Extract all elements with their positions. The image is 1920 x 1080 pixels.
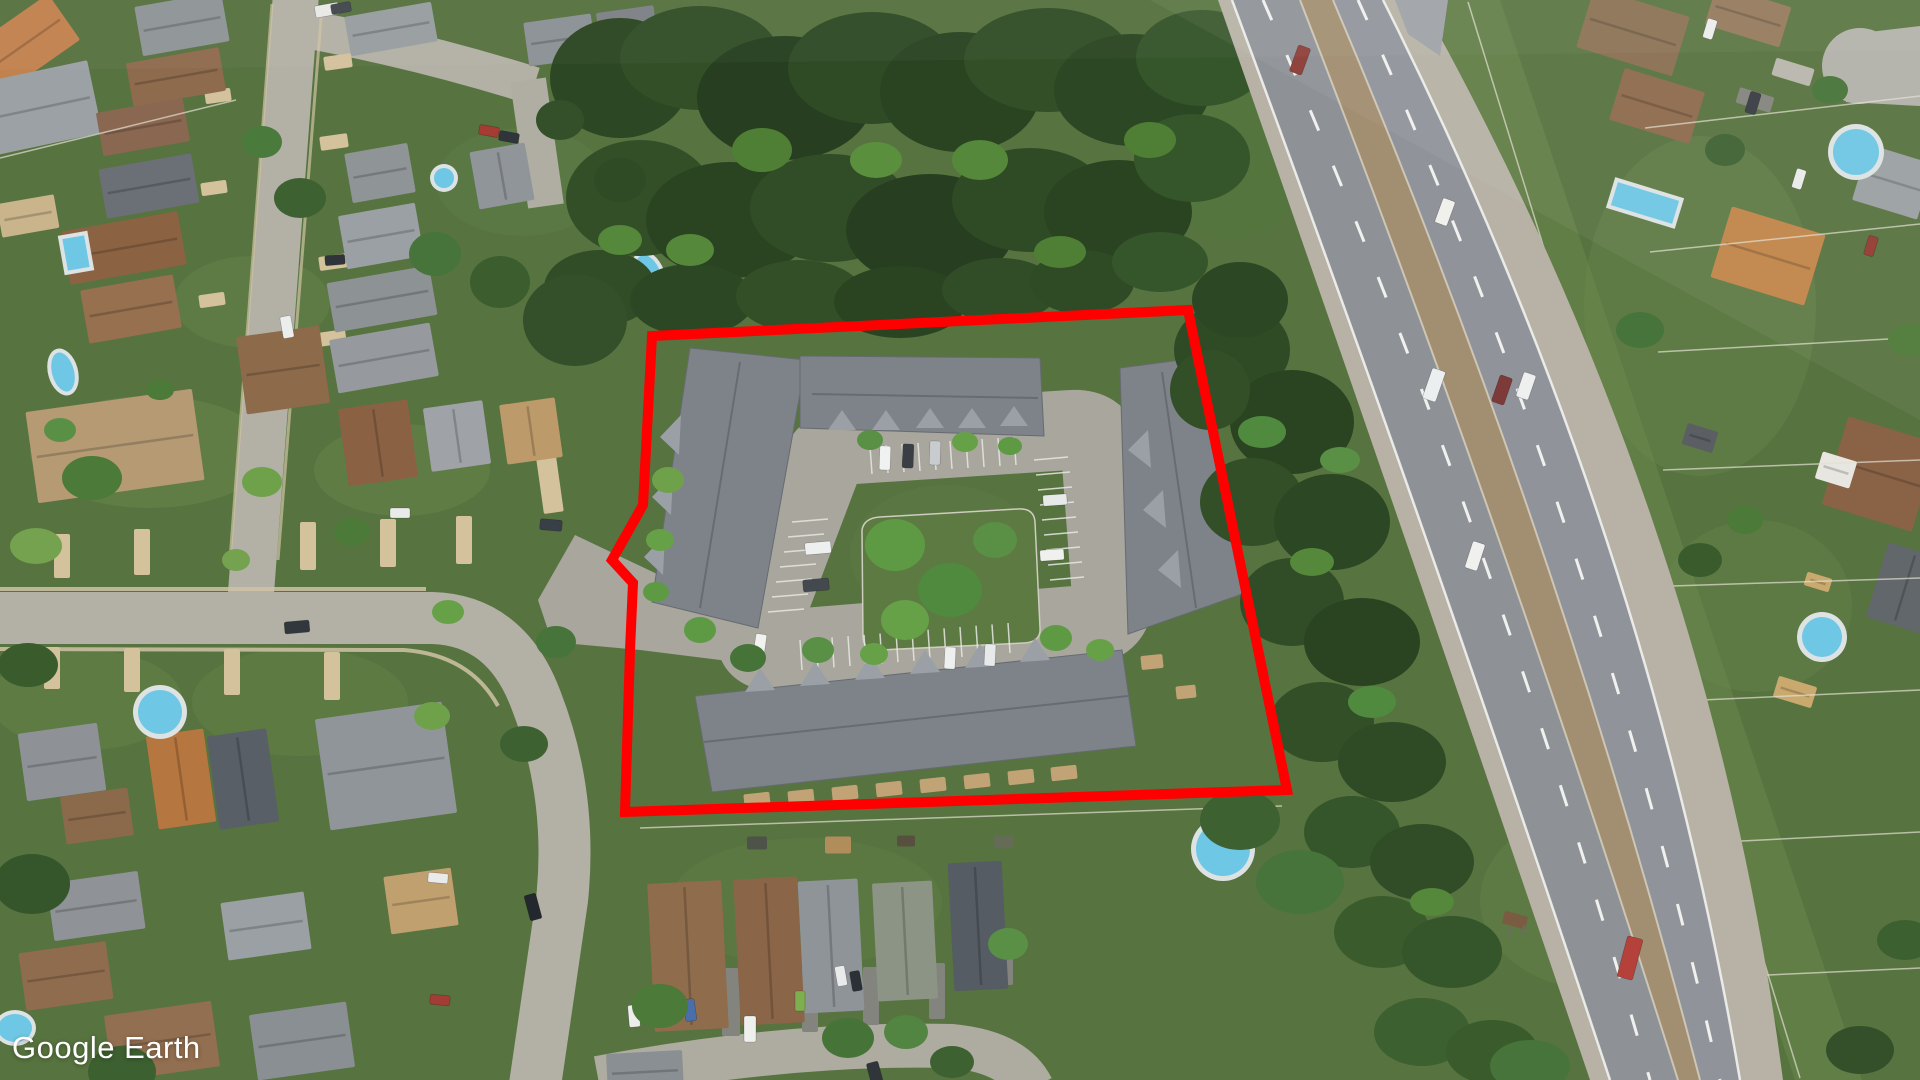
tree-canopy [1192,262,1288,338]
tree-canopy [242,467,282,497]
car [390,508,410,518]
tree-canopy [1410,888,1454,916]
tree-canopy [952,140,1008,180]
driveway-pad [456,516,472,564]
car [1040,549,1065,562]
tree-canopy [865,519,925,571]
tree-canopy [918,563,982,617]
tree-canopy [857,430,883,450]
tree-canopy [1238,416,1286,448]
tree-canopy [334,518,370,546]
driveway-pad [224,649,240,695]
tree-canopy [1370,824,1474,900]
tree-canopy [850,142,902,178]
tree-canopy [523,274,627,366]
tree-canopy [536,626,576,658]
car [430,994,451,1006]
tree-canopy [222,549,250,571]
driveway-pad [324,652,340,700]
patio-deck [919,777,946,794]
tree-canopy [409,232,461,276]
tree-canopy [146,380,174,400]
car [984,644,996,667]
tree-canopy [646,529,674,551]
tree-canopy [10,528,62,564]
tree-canopy [1124,122,1176,158]
tree-canopy [432,600,464,624]
tree-canopy [988,928,1028,960]
tree-canopy [1034,236,1086,268]
car [805,541,832,555]
car [879,446,891,470]
tree-canopy [470,256,530,308]
tree-canopy [1320,447,1360,473]
tree-canopy [1112,232,1208,292]
tree-canopy [1727,506,1763,534]
tree-canopy [536,100,584,140]
driveway-pad [380,519,396,567]
tree-canopy [952,432,978,452]
car [325,254,346,266]
tree-canopy [730,644,766,672]
car [284,620,310,634]
tree-canopy [643,582,669,602]
tree-canopy [652,467,684,493]
tree-canopy [802,637,834,663]
driveway-pad [300,522,316,570]
tree-canopy [973,522,1017,558]
tree-canopy [1256,850,1344,914]
tree-canopy [1304,598,1420,686]
google-earth-watermark: Google Earth [12,1030,201,1066]
tree-canopy [0,643,58,687]
car [428,872,449,884]
driveway-pad [124,648,140,692]
car [929,441,941,465]
tree-canopy [1616,312,1664,348]
garden-shed [994,836,1014,849]
driveway-pad [134,529,150,575]
garden-shed [747,837,767,850]
google-earth-viewport: Google Earth [0,0,1920,1080]
tree-canopy [666,234,714,266]
tree-canopy [62,456,122,500]
swimming-pool [138,690,182,734]
patio-deck [1050,765,1077,782]
patio-deck [831,785,858,802]
tree-canopy [1678,543,1722,577]
garden-shed [825,837,851,854]
swimming-pool [434,168,454,188]
tree-canopy [998,437,1022,455]
tree-canopy [632,984,688,1028]
tree-canopy [1348,686,1396,718]
tree-canopy [860,643,888,665]
tree-canopy [594,158,646,202]
tree-canopy [1086,639,1114,661]
garden-shed [897,836,915,847]
tree-canopy [630,264,754,336]
swimming-pool [1802,617,1842,657]
car [803,578,830,592]
tree-canopy [684,617,716,643]
patio-deck [1007,769,1034,786]
tree-canopy [500,726,548,762]
tree-canopy [732,128,792,172]
tree-canopy [1826,1026,1894,1074]
car [1043,494,1068,507]
tree-canopy [881,600,929,640]
car [744,1016,756,1042]
tree-canopy [822,1018,874,1058]
tree-canopy [414,702,450,730]
patio-deck [963,773,990,790]
car [944,647,956,670]
driveway-pad [863,967,879,1025]
tree-canopy [1200,790,1280,850]
tree-canopy [242,126,282,158]
tree-canopy [44,418,76,442]
patio-deck [1175,684,1196,699]
tree-canopy [1040,625,1072,651]
tree-canopy [1274,474,1390,570]
tree-canopy [1402,916,1502,988]
tree-canopy [930,1046,974,1078]
patio-deck [875,781,902,798]
tree-canopy [884,1015,928,1049]
tree-canopy [1290,548,1334,576]
car [540,519,563,532]
tree-canopy [598,225,642,255]
car [795,991,805,1011]
sign-post [1509,928,1510,938]
house-roof [606,1050,684,1080]
scene-svg [0,0,1920,1080]
sign-post [1523,925,1524,935]
patio-deck [1140,654,1163,670]
tree-canopy [274,178,326,218]
tree-canopy [1338,722,1446,802]
car [902,444,914,468]
